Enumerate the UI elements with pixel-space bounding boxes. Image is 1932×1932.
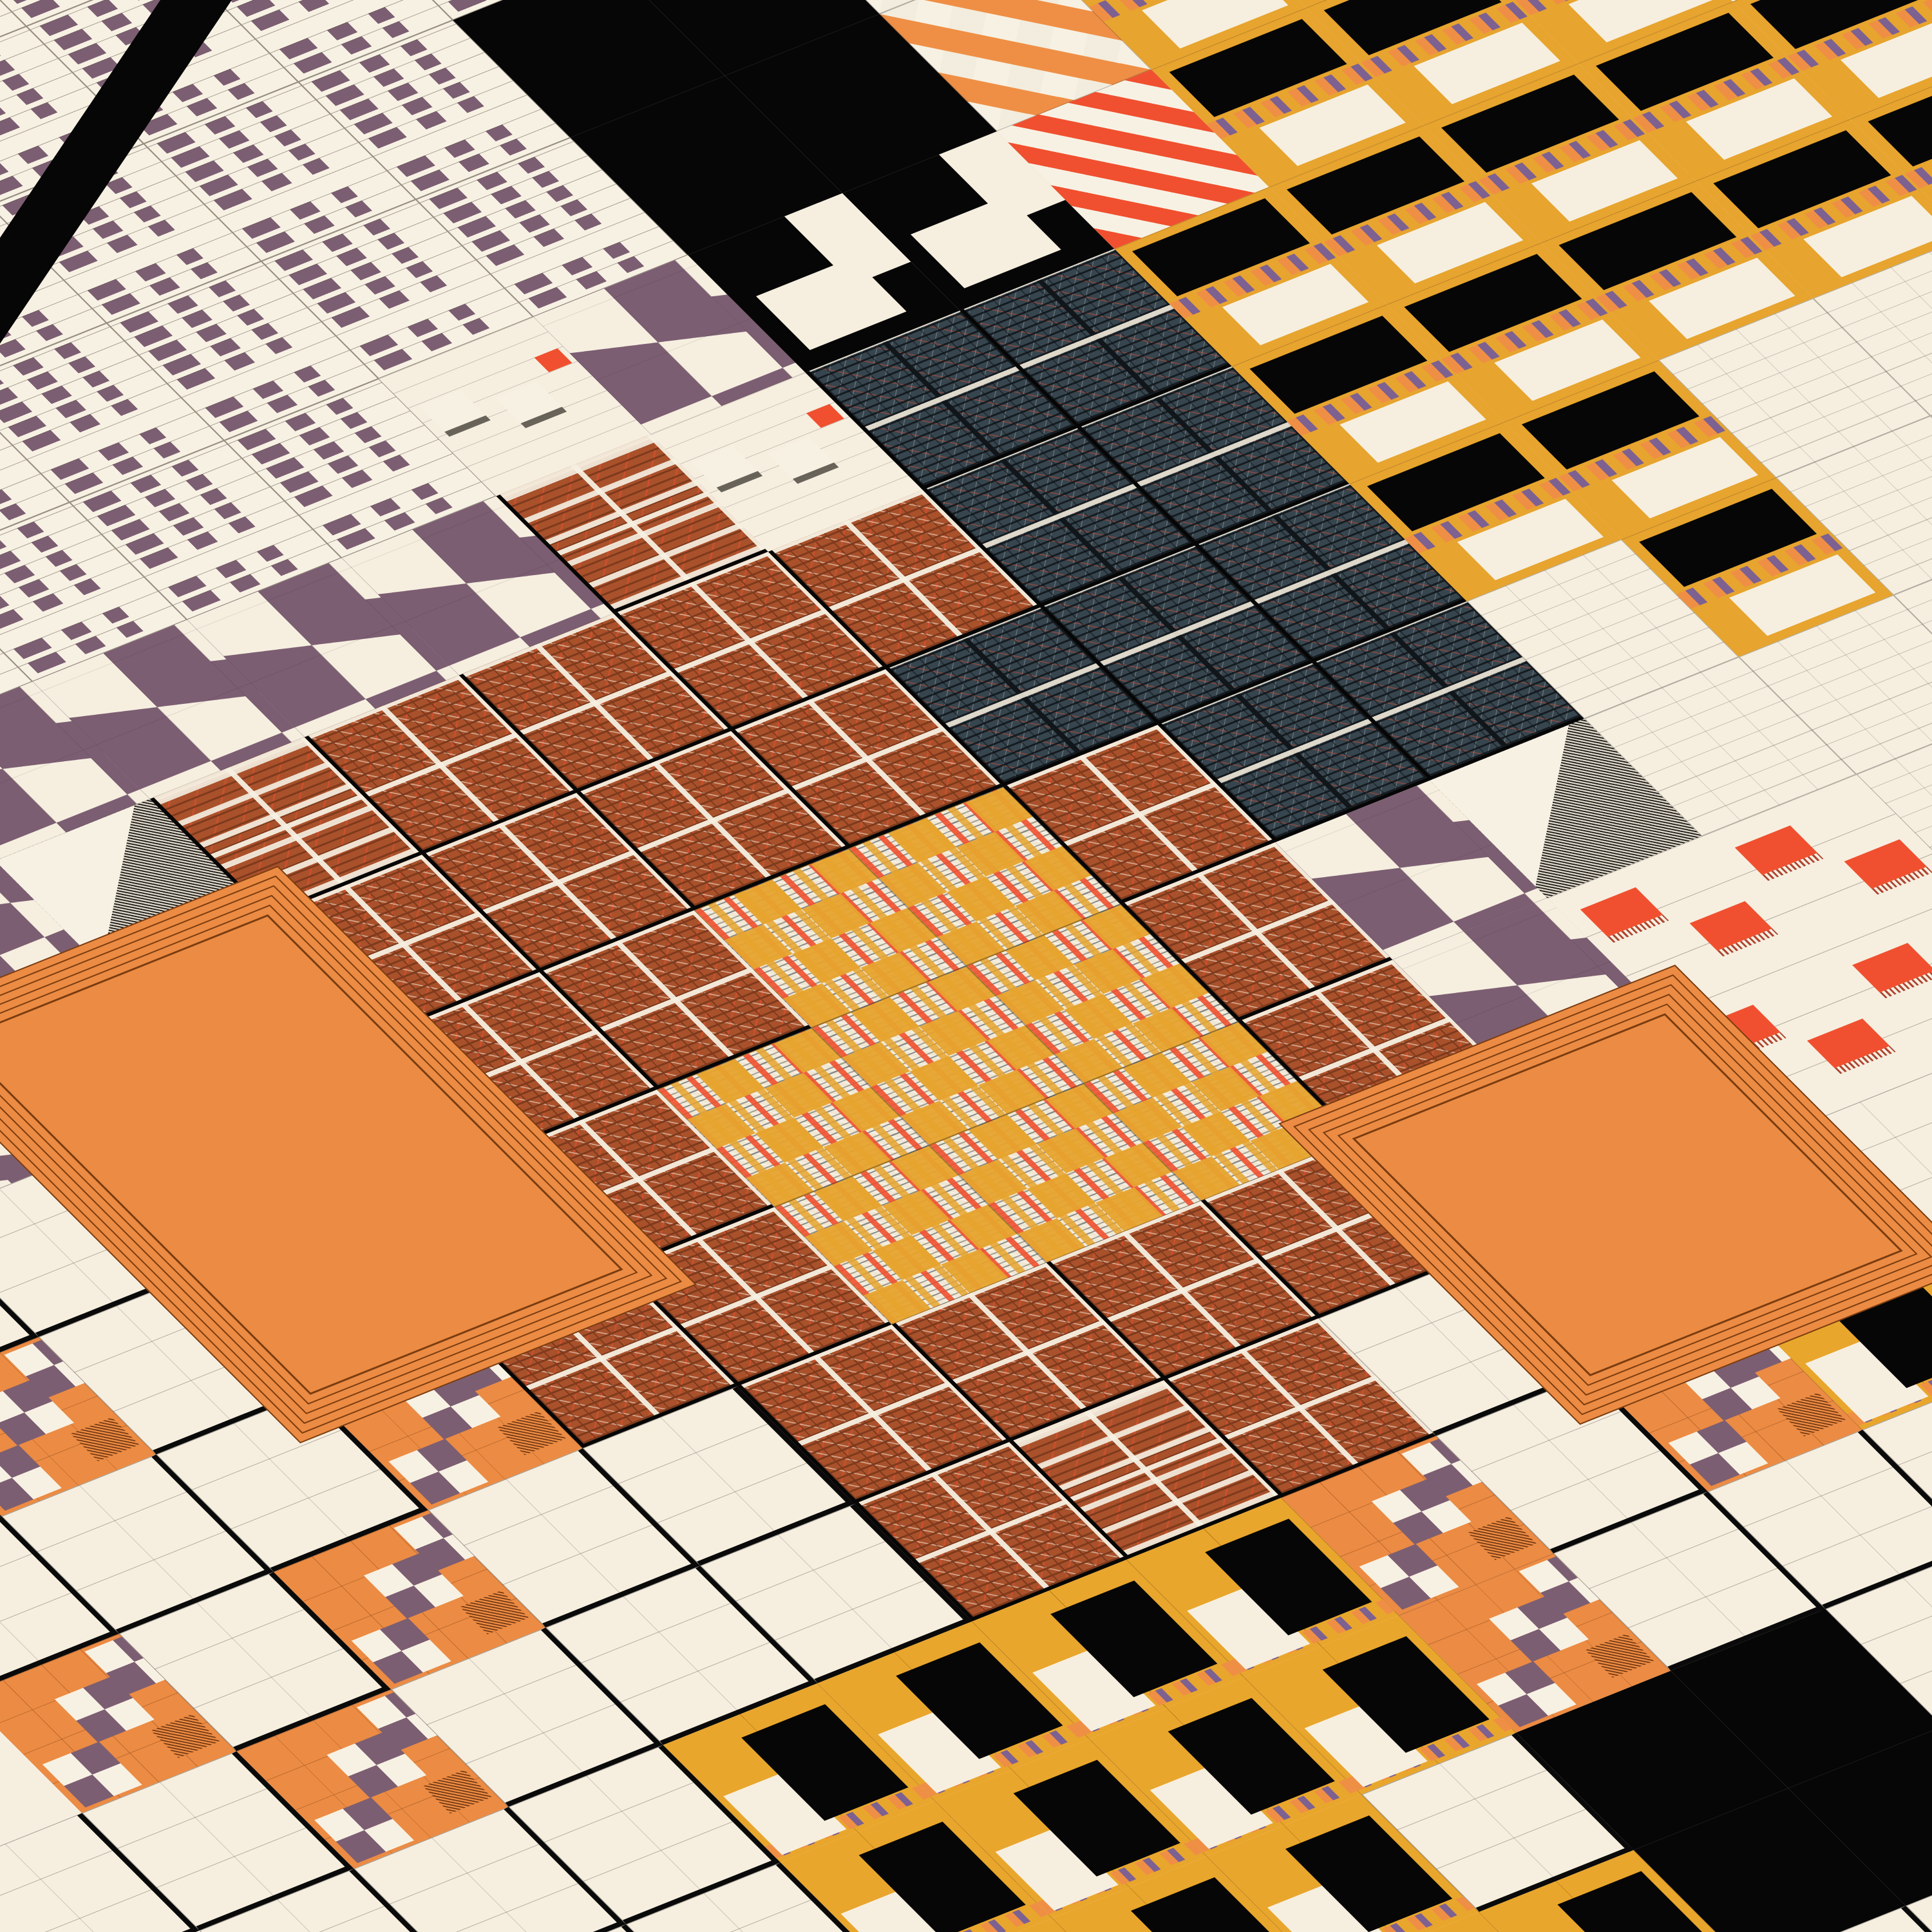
artwork-canvas	[0, 0, 1932, 1932]
world	[0, 0, 1932, 1932]
